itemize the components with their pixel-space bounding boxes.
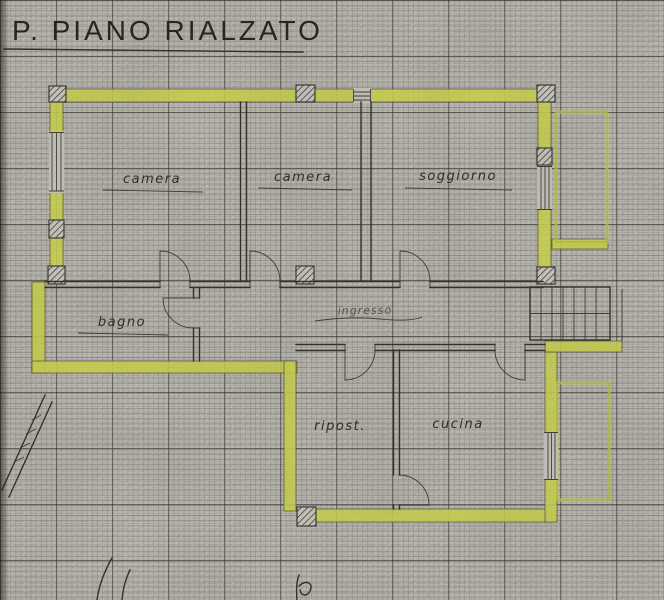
- scanned-floor-plan: P. PIANO RIALZATO: [0, 0, 664, 600]
- scan-noise: [0, 0, 664, 600]
- floor-plan-drawing: P. PIANO RIALZATO: [0, 0, 664, 600]
- scan-edge-shadow: [0, 0, 9, 600]
